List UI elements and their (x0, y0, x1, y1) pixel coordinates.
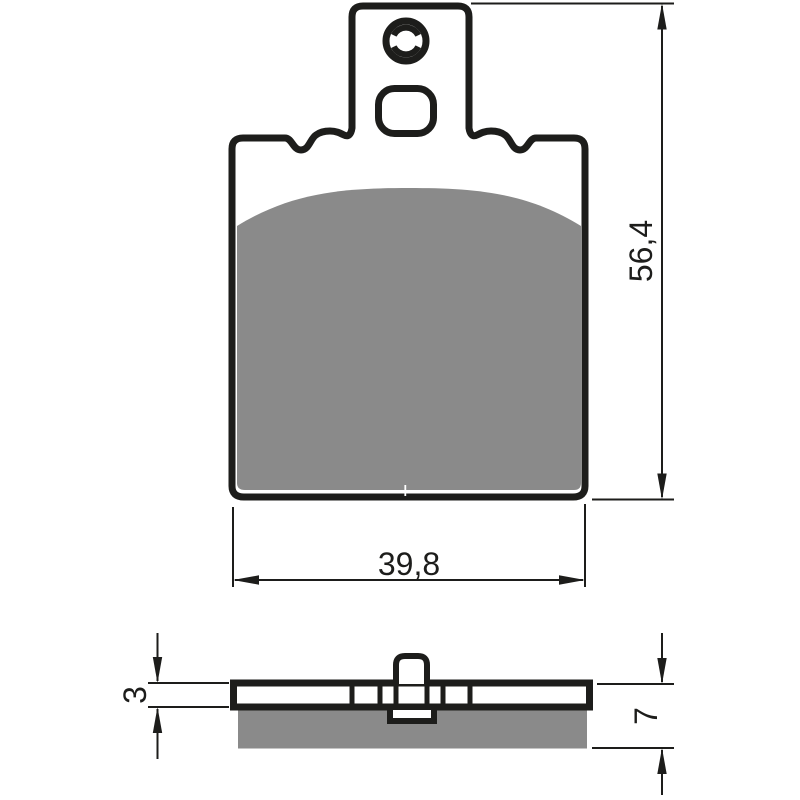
front-view (232, 6, 585, 497)
arrow-down-icon (657, 474, 666, 500)
pin-retainer (390, 707, 434, 721)
dimension-width: 39,8 (233, 504, 585, 587)
dimension-plate-thickness: 3 (117, 633, 229, 759)
spring-hole (379, 89, 434, 134)
arrow-down-icon (153, 657, 162, 683)
pad-parting-seam (404, 485, 406, 496)
friction-material-front (237, 188, 581, 490)
arrow-up-icon (657, 748, 666, 774)
pin-head (396, 656, 427, 684)
dim-height-label: 56,4 (623, 220, 659, 282)
backing-plate-side (234, 683, 590, 707)
side-view (234, 656, 590, 749)
dim-plate-thickness-label: 3 (117, 686, 153, 704)
arrow-up-icon (153, 707, 162, 733)
dim-width-label: 39,8 (378, 546, 440, 582)
dimension-total-thickness: 7 (592, 633, 674, 795)
brake-pad-technical-drawing: 56,4 39,8 3 7 (0, 0, 800, 800)
arrow-up-icon (657, 4, 666, 30)
arrow-left-icon (233, 575, 259, 584)
dim-total-thickness-label: 7 (628, 707, 664, 725)
arrow-down-icon (657, 658, 666, 684)
arrow-right-icon (559, 575, 585, 584)
